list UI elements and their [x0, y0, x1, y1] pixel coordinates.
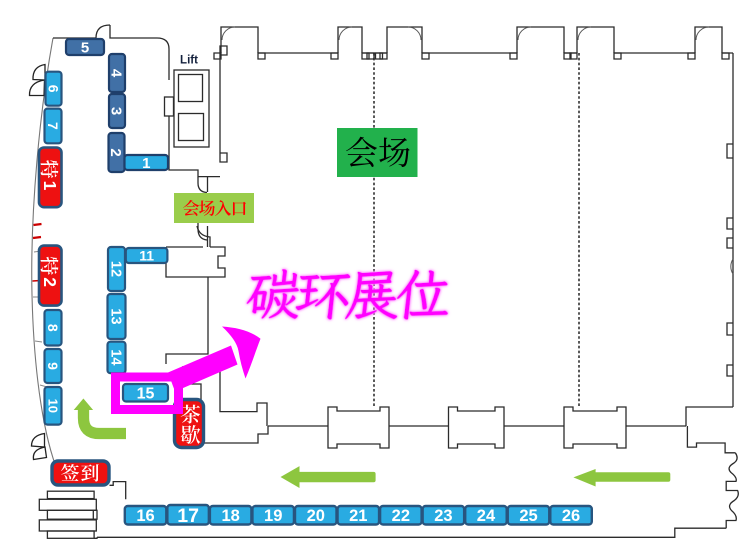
svg-text:25: 25: [519, 507, 537, 525]
svg-text:24: 24: [477, 507, 496, 525]
svg-text:9: 9: [45, 362, 61, 370]
svg-text:22: 22: [392, 507, 410, 525]
svg-text:7: 7: [45, 122, 61, 130]
svg-text:11: 11: [139, 248, 154, 264]
svg-text:19: 19: [264, 507, 282, 525]
svg-text:20: 20: [307, 507, 325, 525]
svg-text:2: 2: [107, 148, 124, 156]
svg-text:1: 1: [142, 155, 150, 172]
svg-text:21: 21: [349, 507, 367, 525]
svg-text:10: 10: [45, 399, 60, 413]
svg-text:18: 18: [221, 507, 239, 525]
svg-text:8: 8: [45, 324, 61, 332]
svg-text:14: 14: [107, 349, 123, 365]
svg-text:6: 6: [45, 85, 61, 93]
svg-text:4: 4: [108, 69, 125, 78]
svg-text:3: 3: [108, 107, 125, 115]
svg-text:Lift: Lift: [180, 55, 198, 67]
svg-text:15: 15: [137, 386, 155, 403]
svg-text:26: 26: [562, 507, 580, 525]
svg-text:17: 17: [177, 505, 199, 527]
svg-text:23: 23: [434, 507, 452, 525]
svg-text:12: 12: [107, 261, 123, 277]
svg-text:5: 5: [81, 39, 89, 56]
svg-text:1: 1: [40, 181, 60, 191]
svg-text:16: 16: [136, 507, 154, 525]
svg-text:13: 13: [107, 308, 123, 324]
svg-text:2: 2: [40, 277, 60, 287]
